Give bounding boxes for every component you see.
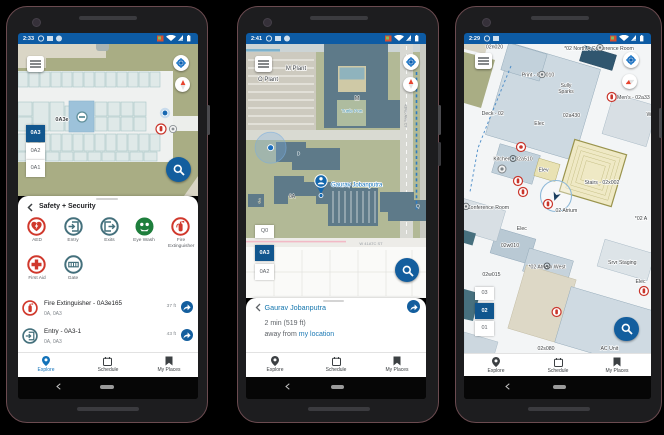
svg-text:Elec: Elec [517, 226, 527, 232]
svg-text:AC Unit: AC Unit [600, 346, 618, 352]
svg-text:M Plant: M Plant [286, 66, 307, 72]
svg-text:W: W [647, 112, 651, 118]
svg-text:D: D [297, 152, 301, 158]
svg-text:Conference Room: Conference Room [467, 205, 509, 211]
svg-text:Srvr Staging: Srvr Staging [608, 260, 637, 266]
svg-text:02w015: 02w015 [482, 272, 500, 278]
svg-text:0A: 0A [289, 194, 296, 200]
svg-text:02s080: 02s080 [537, 346, 554, 352]
svg-text:Q: Q [416, 204, 420, 210]
svg-text:02n020: 02n020 [486, 45, 503, 51]
svg-text:*02 A: *02 A [635, 216, 648, 222]
svg-text:Elec: Elec [534, 121, 544, 127]
svg-text:Tuttle Pon: Tuttle Pon [342, 109, 363, 114]
svg-text:Stairs - 02x002: Stairs - 02x002 [585, 180, 620, 186]
svg-text:Gaurav Jobanputra: Gaurav Jobanputra [331, 183, 383, 189]
svg-text:43RD AVE CT: 43RD AVE CT [404, 104, 408, 129]
svg-text:Elec: Elec [636, 279, 646, 285]
svg-text:Print - 02n010: Print - 02n010 [522, 73, 555, 79]
svg-text:Sparks: Sparks [558, 89, 574, 95]
svg-text:Men's - 02a33: Men's - 02a33 [617, 95, 650, 101]
svg-text:W 41ATC ST: W 41ATC ST [359, 241, 383, 246]
svg-text:Deck - 02: Deck - 02 [482, 111, 504, 117]
svg-text:Elev: Elev [539, 168, 549, 174]
svg-text:02 Atrium: 02 Atrium [555, 208, 577, 214]
svg-text:02a430: 02a430 [563, 113, 580, 119]
svg-text:0A3e: 0A3e [55, 117, 68, 123]
svg-text:O Plant: O Plant [258, 77, 278, 83]
svg-text:02w010: 02w010 [501, 243, 519, 249]
svg-text:M: M [355, 96, 360, 102]
